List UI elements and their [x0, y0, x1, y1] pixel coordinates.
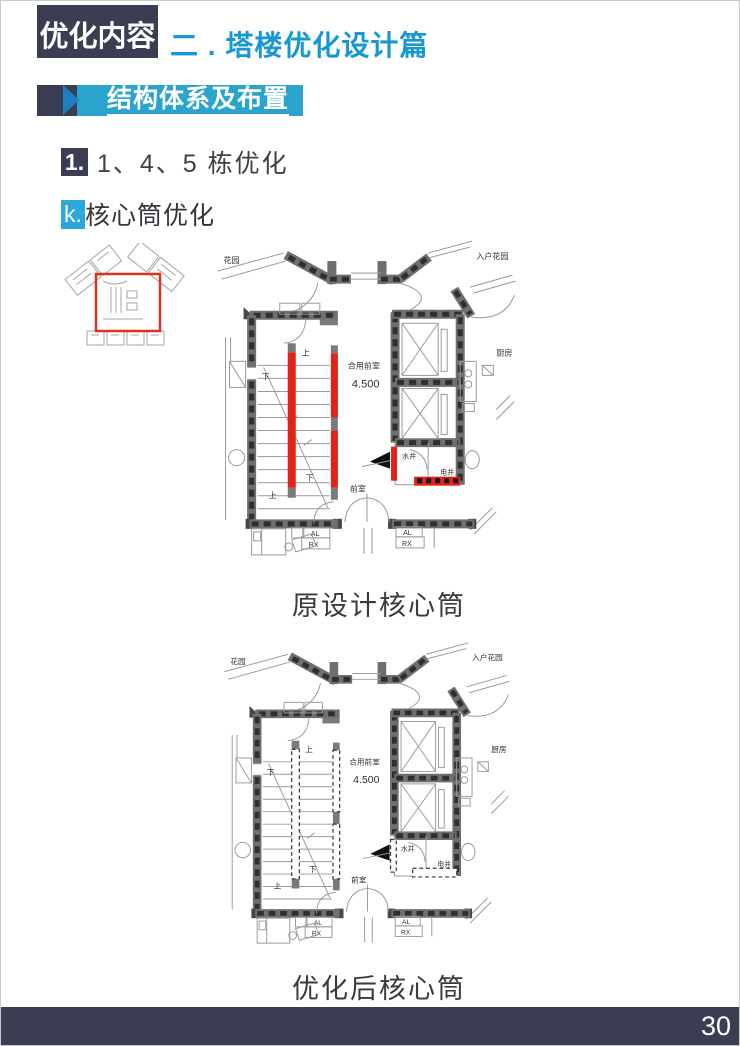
garden-label: 花园	[224, 255, 240, 265]
stair-up-label: 上	[269, 491, 277, 500]
garden-label: 花园	[230, 656, 246, 666]
caption-optimized: 优化后核心筒	[213, 967, 545, 1006]
stair-down-label: 下	[309, 865, 317, 874]
red-wall-strip	[331, 353, 338, 417]
stair-up-label: 上	[305, 745, 313, 754]
electric-shaft-label: 电井	[440, 468, 454, 477]
floor-plan-optimized: 下 上 下 上 合用前室 4.500 前室	[213, 639, 545, 970]
water-shaft-label: 水井	[402, 452, 416, 461]
entry-garden-label: 入户花园	[476, 251, 508, 261]
item-title: 1、4、5 栋优化	[97, 144, 289, 180]
red-wall-strip	[331, 431, 338, 488]
electrical-boxes: AL RX AL RX	[292, 527, 424, 549]
section-arrow	[370, 452, 390, 469]
item-heading: 1. 1、4、5 栋优化	[61, 144, 289, 180]
kitchen-label: 厨房	[491, 744, 507, 754]
al-box-label: AL	[402, 919, 410, 926]
sub-letter-badge: k.	[61, 200, 85, 229]
electrical-boxes: AL RX AL RX	[296, 916, 423, 937]
red-wall-shaft	[391, 447, 397, 481]
core-tube-plan-drawing: 下 上 下 上 合用前室 4.500 前室	[213, 639, 545, 970]
floor-plan-original: 下 上 下 上 合用前室 4.500 前室	[213, 237, 545, 583]
al-box-label: AL	[403, 530, 412, 537]
removed-wall-strip	[333, 824, 340, 879]
footer-bar: 30	[1, 1007, 740, 1045]
electric-shaft-label: 电井	[438, 859, 452, 868]
sub-heading: k. 核心筒优化	[61, 196, 215, 232]
kicker-text: 优化内容	[39, 13, 155, 55]
core-area	[103, 281, 143, 319]
lobby-label: 前室	[350, 484, 366, 494]
kitchen-label: 厨房	[496, 347, 512, 357]
bottom-walls	[251, 885, 472, 943]
red-wall-strip	[288, 352, 296, 487]
stair-down-label: 下	[262, 372, 270, 381]
service-shafts: 水井 电井	[363, 836, 457, 877]
level-label: 4.500	[353, 774, 380, 786]
stair-up-label: 上	[273, 881, 281, 890]
item-number-badge: 1.	[61, 148, 88, 176]
core-tube-plan-drawing: 下 上 下 上 合用前室 4.500 前室	[213, 237, 545, 583]
removed-wall-shaft	[391, 840, 397, 873]
stair-down-label: 下	[306, 474, 314, 483]
section-arrow	[370, 844, 389, 860]
rx-box-label: RX	[402, 541, 412, 548]
stair-up-label: 上	[302, 348, 310, 357]
bottom-wing	[87, 331, 164, 345]
right-wing	[128, 243, 184, 292]
left-wing	[65, 245, 121, 295]
header-kicker: 优化内容	[37, 5, 158, 58]
stair-down-label: 下	[267, 768, 275, 777]
entry-garden-label: 入户花园	[472, 652, 503, 662]
key-plan-drawing	[59, 243, 195, 357]
shared-lobby-label: 合用前室	[348, 360, 380, 370]
slide-page: 优化内容 二 . 塔楼优化设计篇 结构体系及布置 1. 1、4、5 栋优化 k.…	[0, 0, 740, 1046]
page-title: 二 . 塔楼优化设计篇	[170, 24, 428, 64]
sub-title: 核心筒优化	[85, 196, 215, 232]
lobby-label: 前室	[351, 875, 367, 885]
shared-lobby-label: 合用前室	[349, 757, 380, 767]
section-banner-label: 结构体系及布置	[107, 86, 289, 116]
page-number: 30	[701, 1011, 731, 1042]
water-shaft-label: 水井	[401, 844, 415, 853]
bottom-walls	[246, 494, 477, 554]
section-banner: 结构体系及布置	[37, 85, 303, 116]
level-label: 4.500	[352, 378, 380, 390]
banner-body: 结构体系及布置	[77, 85, 303, 116]
chevron-right-icon	[63, 85, 79, 115]
removed-wall-bottom	[413, 868, 457, 877]
service-shafts: 水井 电井	[362, 443, 460, 486]
removed-wall-strip	[292, 749, 300, 879]
caption-original: 原设计核心筒	[213, 584, 545, 623]
removed-wall-strip	[333, 750, 340, 811]
rx-box-label: RX	[401, 930, 411, 937]
key-plan-thumbnail	[59, 243, 195, 357]
